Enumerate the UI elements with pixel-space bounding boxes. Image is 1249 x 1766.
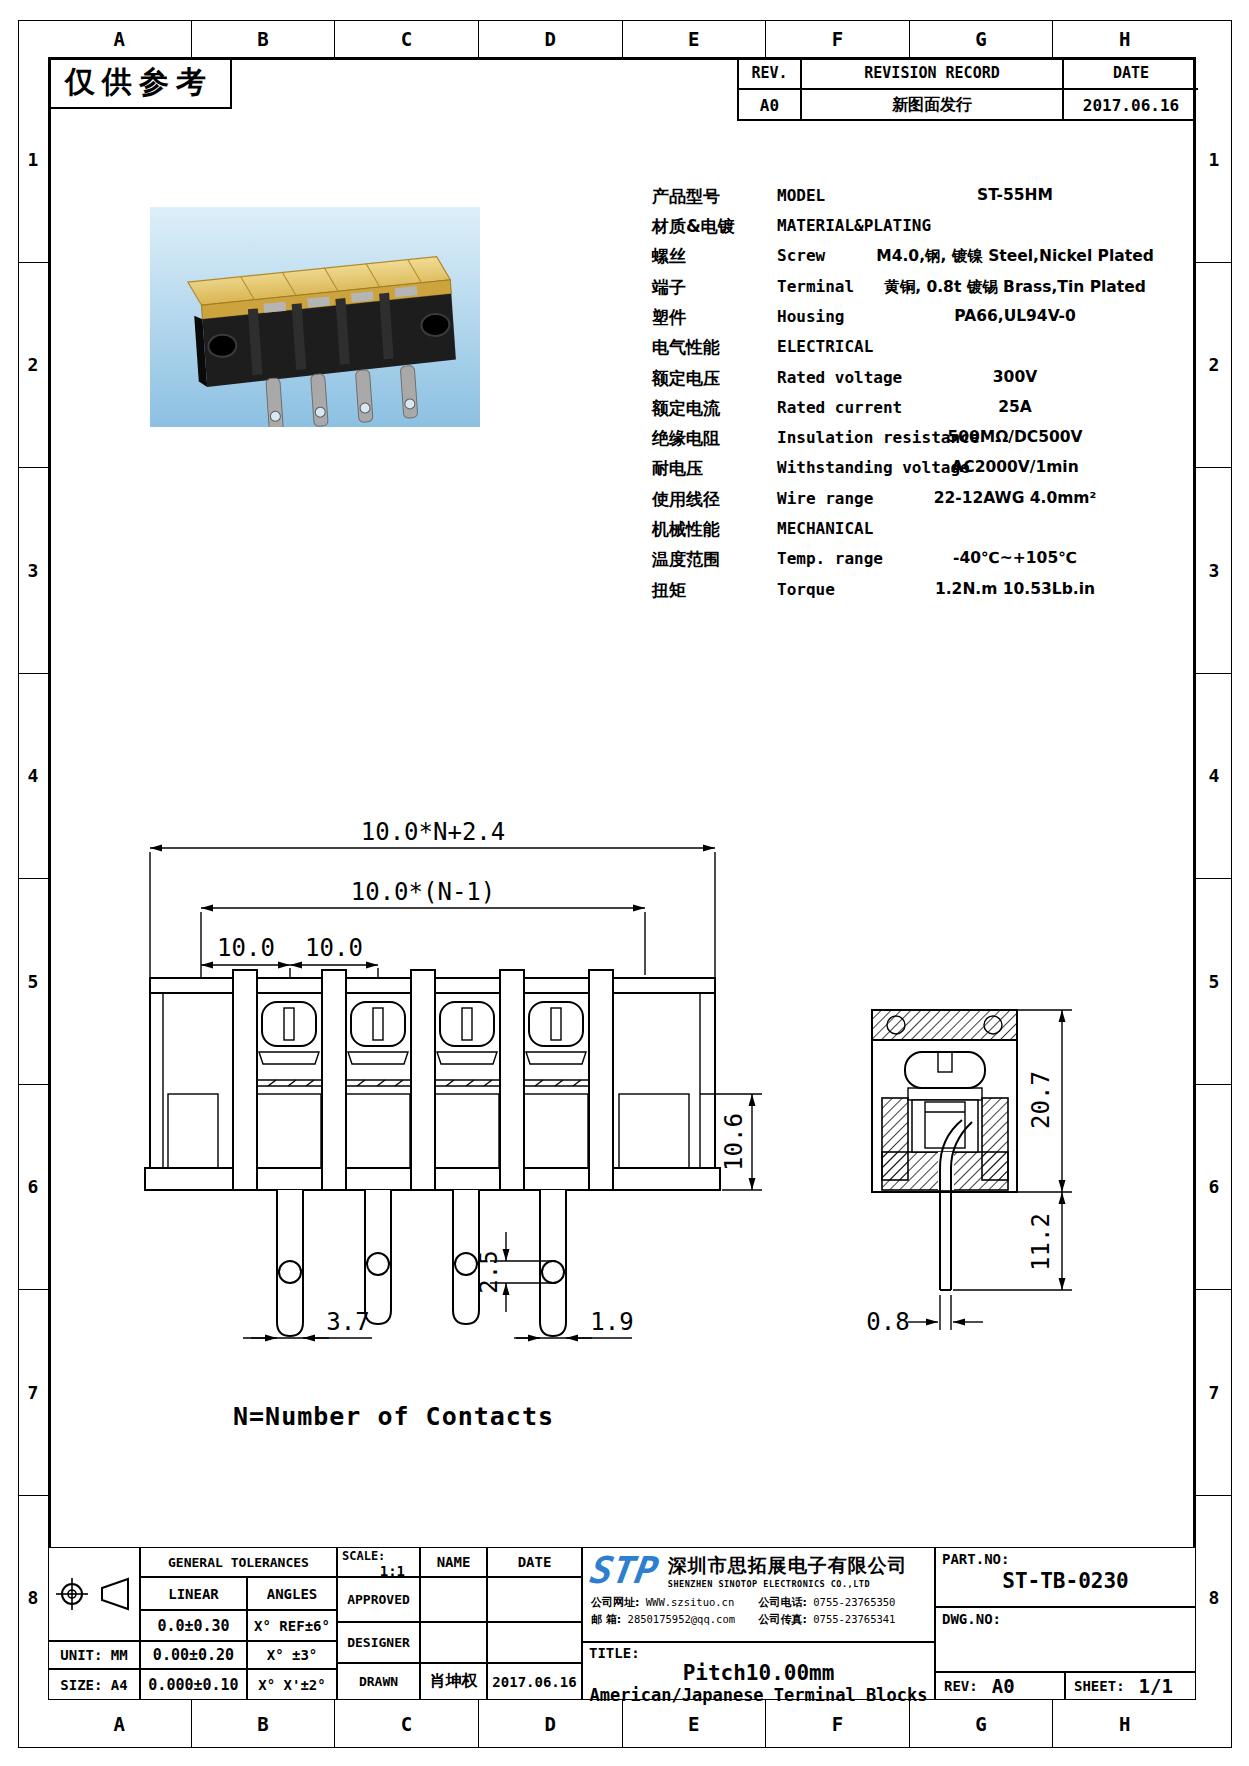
spec-row: 额定电压Rated voltage300V <box>652 363 1172 393</box>
grid-col-label: F <box>766 1700 910 1748</box>
spec-label-cn: 产品型号 <box>652 185 777 208</box>
spec-value: 黄铜, 0.8t 镀锡 Brass,Tin Plated <box>860 277 1170 298</box>
revision-table: REV. REVISION RECORD DATE A0 新图面发行 2017.… <box>737 57 1196 121</box>
side-view: 20.7 11.2 0.8 <box>866 1010 1072 1336</box>
drawn-label: DRAWN <box>337 1663 420 1700</box>
drawn-name: 肖坤权 <box>420 1663 487 1700</box>
title-block: UNIT: MM SIZE: A4 GENERAL TOLERANCES LIN… <box>48 1547 1196 1700</box>
grid-band-left: 1 2 3 4 5 6 7 8 <box>18 57 48 1700</box>
stp-logo: STP <box>588 1552 661 1589</box>
spec-label-en: MECHANICAL <box>777 519 992 538</box>
dim-total-width: 10.0*N+2.4 <box>361 818 506 846</box>
grid-row-label: 2 <box>18 263 48 469</box>
spec-value: 500MΩ/DC500V <box>860 428 1170 446</box>
company-website: 公司网址: WWW.szsituo.cn <box>591 1595 759 1610</box>
contacts-note: N=Number of Contacts <box>233 1402 554 1431</box>
grid-col-label: F <box>766 20 910 57</box>
dimension-drawing: 10.0*N+2.4 10.0*(N-1) 10.0 10.0 <box>100 780 1100 1360</box>
solder-legs <box>277 1190 566 1336</box>
spec-row: 电气性能ELECTRICAL <box>652 332 1172 362</box>
grid-col-label: D <box>479 1700 623 1748</box>
spec-label-cn: 材质&电镀 <box>652 215 777 238</box>
tolerance-linear: 0.0±0.30 <box>140 1610 247 1641</box>
grid-row-label: 7 <box>1196 1290 1232 1496</box>
part-no-cell: PART.NO: ST-TB-0230 <box>935 1547 1196 1607</box>
spec-label-cn: 塑件 <box>652 306 777 329</box>
spec-label-cn: 使用线径 <box>652 488 777 511</box>
grid-row-label: 4 <box>18 674 48 880</box>
grid-row-label: 8 <box>1196 1496 1232 1701</box>
size-cell: SIZE: A4 <box>48 1669 140 1700</box>
dim-pin-thickness: 0.8 <box>866 1308 909 1336</box>
grid-row-label: 6 <box>18 1085 48 1291</box>
phone-value: 0755-23765350 <box>813 1596 895 1608</box>
spec-row: 温度范围Temp. range-40℃~+105℃ <box>652 544 1172 574</box>
dim-leg-thickness: 1.9 <box>590 1308 633 1336</box>
tolerance-angle: X° REF±6° <box>247 1610 337 1641</box>
tolerance-angle: X° X'±2° <box>247 1669 337 1700</box>
spec-row: 螺丝ScrewM4.0,钢, 镀镍 Steel,Nickel Plated <box>652 241 1172 271</box>
grid-col-label: G <box>910 1700 1054 1748</box>
spec-label-cn: 绝缘电阻 <box>652 427 777 450</box>
spec-row: 耐电压Withstanding voltageAC2000V/1min <box>652 453 1172 483</box>
grid-row-label: 8 <box>18 1496 48 1701</box>
spec-row: 塑件HousingPA66,UL94V-0 <box>652 302 1172 332</box>
spec-row: 产品型号MODELST-55HM <box>652 181 1172 211</box>
spec-label-cn: 电气性能 <box>652 336 777 359</box>
grid-row-label: 3 <box>1196 468 1232 674</box>
fax-label: 公司传真: <box>759 1613 807 1626</box>
date-header: DATE <box>487 1547 582 1577</box>
sheet-cell: SHEET: 1/1 <box>1065 1672 1196 1700</box>
product-photo <box>150 207 480 427</box>
company-phone: 公司电话: 0755-23765350 <box>759 1595 927 1610</box>
scale-label: SCALE: <box>342 1549 385 1563</box>
designer-date-cell <box>487 1622 582 1663</box>
spec-value: 300V <box>860 368 1170 386</box>
spec-value: -40℃~+105℃ <box>860 549 1170 567</box>
spec-value: M4.0,钢, 镀镍 Steel,Nickel Plated <box>860 246 1170 267</box>
grid-col-label: C <box>335 1700 479 1748</box>
grid-row-label: 4 <box>1196 674 1232 880</box>
grid-row-label: 1 <box>18 57 48 263</box>
designer-name-cell <box>420 1622 487 1663</box>
website-label: 公司网址: <box>591 1596 639 1609</box>
scale-cell: SCALE: 1:1 <box>337 1547 420 1577</box>
spec-value: AC2000V/1min <box>860 458 1170 476</box>
drawing-title-line1: Pitch10.00mm <box>589 1661 928 1685</box>
angles-header: ANGLES <box>247 1577 337 1610</box>
projection-symbol-icon <box>54 1572 134 1616</box>
spec-value: 25A <box>860 398 1170 416</box>
company-cell: STP 深圳市思拓展电子有限公司 SHENZHEN SINOTOP ELECTR… <box>582 1547 935 1642</box>
terminal-block-photo <box>150 207 480 427</box>
drawing-sheet: A B C D E F G H A B C D E F G H 1 2 3 4 … <box>0 0 1249 1766</box>
spec-label-en: MATERIAL&PLATING <box>777 216 992 235</box>
date-header: DATE <box>1064 57 1198 88</box>
fax-value: 0755-23765341 <box>813 1613 895 1625</box>
dim-body-height: 10.6 <box>720 1113 748 1171</box>
grid-row-label: 7 <box>18 1290 48 1496</box>
dwg-no-label: DWG.NO: <box>942 1611 1001 1627</box>
sheet-value: 1/1 <box>1139 1675 1173 1697</box>
approved-date-cell <box>487 1577 582 1622</box>
dim-hole: 2.5 <box>475 1250 503 1293</box>
grid-row-label: 6 <box>1196 1085 1232 1291</box>
front-view: 10.0*N+2.4 10.0*(N-1) 10.0 10.0 <box>145 818 762 1338</box>
spec-row: 绝缘电阻Insulation resistance500MΩ/DC500V <box>652 423 1172 453</box>
spec-row: 端子Terminal黄铜, 0.8t 镀锡 Brass,Tin Plated <box>652 272 1172 302</box>
spec-row: 机械性能MECHANICAL <box>652 514 1172 544</box>
grid-band-top: A B C D E F G H <box>48 20 1196 57</box>
part-no-label: PART.NO: <box>942 1551 1009 1567</box>
designer-label: DESIGNER <box>337 1622 420 1663</box>
grid-col-label: C <box>335 20 479 57</box>
spec-label-cn: 耐电压 <box>652 457 777 480</box>
drawing-title-line2: American/Japanese Terminal Blocks <box>589 1685 928 1705</box>
grid-col-label: B <box>192 1700 336 1748</box>
grid-col-label: A <box>48 20 192 57</box>
grid-band-right: 1 2 3 4 5 6 7 8 <box>1196 57 1232 1700</box>
grid-col-label: D <box>479 20 623 57</box>
rev-value: A0 <box>739 88 802 121</box>
company-fax: 公司传真: 0755-23765341 <box>759 1612 927 1627</box>
email-value: 2850175952@qq.com <box>628 1613 735 1625</box>
spec-row: 材质&电镀MATERIAL&PLATING <box>652 211 1172 241</box>
title-cell: TITLE: Pitch10.00mm American/Japanese Te… <box>582 1642 935 1700</box>
email-label: 邮 箱: <box>591 1613 621 1626</box>
grid-col-label: H <box>1053 20 1196 57</box>
rev-value: A0 <box>992 1675 1015 1697</box>
spec-value: 22-12AWG 4.0mm² <box>860 489 1170 507</box>
spec-row: 使用线径Wire range22-12AWG 4.0mm² <box>652 484 1172 514</box>
grid-col-label: E <box>623 20 767 57</box>
spec-value: 1.2N.m 10.53Lb.in <box>860 580 1170 598</box>
spec-value: ST-55HM <box>860 186 1170 204</box>
tolerance-angle: X° ±3° <box>247 1641 337 1669</box>
approved-label: APPROVED <box>337 1577 420 1622</box>
revision-record-header: REVISION RECORD <box>802 57 1064 88</box>
spec-label-cn: 温度范围 <box>652 548 777 571</box>
spec-value: PA66,UL94V-0 <box>860 307 1170 325</box>
spec-label-cn: 端子 <box>652 276 777 299</box>
grid-col-label: E <box>623 1700 767 1748</box>
dim-span: 10.0*(N-1) <box>351 878 496 906</box>
grid-row-label: 3 <box>18 468 48 674</box>
grid-row-label: 5 <box>1196 879 1232 1085</box>
rev-header: REV. <box>739 57 802 88</box>
dwg-no-cell: DWG.NO: <box>935 1607 1196 1672</box>
approved-name-cell <box>420 1577 487 1622</box>
grid-col-label: G <box>910 20 1054 57</box>
spec-label-cn: 额定电压 <box>652 367 777 390</box>
dim-pitch: 10.0 <box>217 934 275 962</box>
spec-label-cn: 扭矩 <box>652 579 777 602</box>
name-header: NAME <box>420 1547 487 1577</box>
spec-row: 扭矩Torque1.2N.m 10.53Lb.in <box>652 575 1172 605</box>
grid-row-label: 5 <box>18 879 48 1085</box>
dim-pin-length: 11.2 <box>1027 1213 1055 1271</box>
dim-leg-width: 3.7 <box>326 1308 369 1336</box>
company-name-en: SHENZHEN SINOTOP ELECTRONICS CO.,LTD <box>668 1579 908 1589</box>
spec-label-en: ELECTRICAL <box>777 337 992 356</box>
grid-col-label: B <box>192 20 336 57</box>
drawn-date: 2017.06.16 <box>487 1663 582 1700</box>
grid-row-label: 1 <box>1196 57 1232 263</box>
tolerance-linear: 0.00±0.20 <box>140 1641 247 1669</box>
grid-row-label: 2 <box>1196 263 1232 469</box>
general-tolerances-header: GENERAL TOLERANCES <box>140 1547 337 1577</box>
phone-label: 公司电话: <box>759 1596 807 1609</box>
tolerance-linear: 0.000±0.10 <box>140 1669 247 1700</box>
revision-date-value: 2017.06.16 <box>1064 88 1198 121</box>
part-no-value: ST-TB-0230 <box>1002 1569 1128 1593</box>
grid-band-bottom: A B C D E F G H <box>48 1700 1196 1748</box>
company-name-cn: 深圳市思拓展电子有限公司 <box>668 1553 908 1579</box>
spec-row: 额定电流Rated current25A <box>652 393 1172 423</box>
unit-cell: UNIT: MM <box>48 1641 140 1669</box>
rev-cell: REV: A0 <box>935 1672 1065 1700</box>
sheet-label: SHEET: <box>1074 1678 1125 1694</box>
reference-only-stamp: 仅供参考 <box>48 57 232 109</box>
revision-record-value: 新图面发行 <box>802 88 1064 121</box>
title-label: TITLE: <box>589 1645 928 1661</box>
website-value: WWW.szsituo.cn <box>646 1596 735 1608</box>
spec-label-cn: 螺丝 <box>652 245 777 268</box>
grid-col-label: A <box>48 1700 192 1748</box>
company-email: 邮 箱: 2850175952@qq.com <box>591 1612 759 1627</box>
linear-header: LINEAR <box>140 1577 247 1610</box>
dim-side-height: 20.7 <box>1027 1071 1055 1129</box>
spec-label-cn: 额定电流 <box>652 397 777 420</box>
projection-symbol-cell <box>48 1547 140 1641</box>
spec-label-cn: 机械性能 <box>652 518 777 541</box>
rev-label: REV: <box>944 1678 978 1694</box>
grid-col-label: H <box>1053 1700 1196 1748</box>
dim-pitch: 10.0 <box>305 934 363 962</box>
